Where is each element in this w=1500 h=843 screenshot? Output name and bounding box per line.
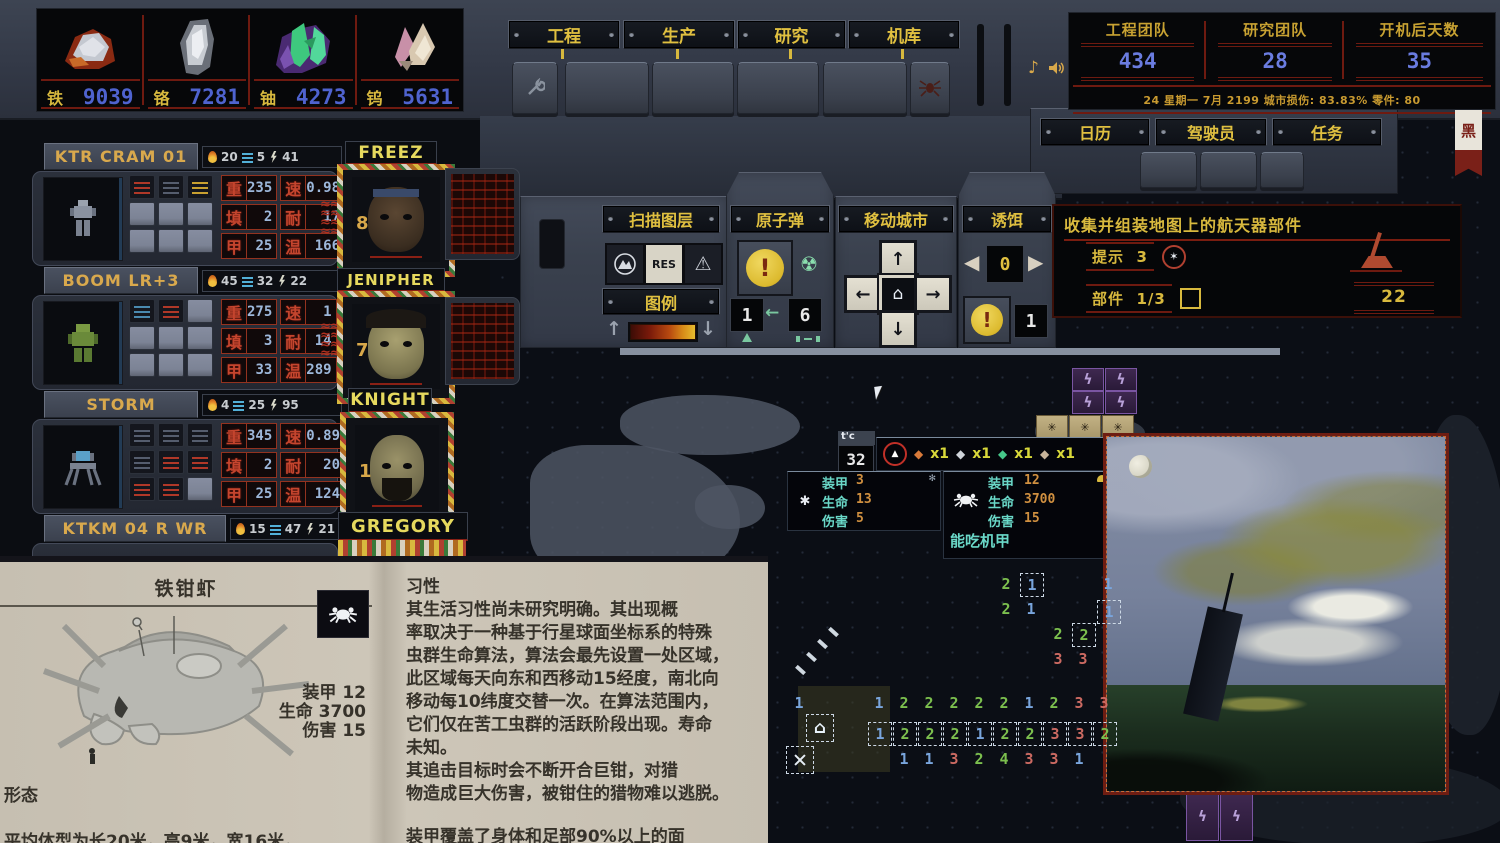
tungsten-drop-icon: ◆	[1040, 447, 1049, 461]
quest-checkbox[interactable]	[1180, 288, 1201, 309]
heat-icon	[208, 399, 217, 411]
radiation-icon: ☢	[800, 252, 818, 276]
map-cell[interactable]: 2	[918, 722, 942, 746]
power-icon	[269, 151, 278, 163]
menu-key-1[interactable]	[1140, 152, 1197, 188]
module-chip[interactable]	[129, 299, 155, 323]
enemy-info-big: 装甲12 生命3700 伤害15 能吃机甲	[943, 471, 1113, 559]
storm-tile[interactable]: ϟ	[1072, 391, 1104, 414]
counter-engineering: 工程团队 434	[1069, 13, 1206, 79]
wrench-icon	[525, 78, 545, 98]
decoy-minus-arrow[interactable]: ◀	[964, 252, 979, 272]
circuit-panel	[445, 297, 520, 385]
module-slot[interactable]	[187, 326, 213, 350]
pilot-card-jenipher[interactable]: JENIPHER 7	[337, 268, 443, 392]
decoy-title: 诱饵	[962, 205, 1052, 233]
quest-hint-label: 提示 3	[1086, 242, 1154, 271]
module-slot[interactable]	[187, 299, 213, 323]
warning-icon: ⚠	[694, 253, 711, 275]
uranium-ore-icon	[268, 15, 338, 77]
enemy-info-small: ✱ 装甲3 生命13 伤害5 ✻	[787, 471, 941, 531]
module-slot[interactable]	[187, 353, 213, 377]
beard	[382, 478, 412, 500]
pilot-card-knight[interactable]: KNIGHT 1	[340, 388, 442, 514]
move-west-button[interactable]: ←	[844, 275, 882, 313]
map-cell[interactable]: 1	[1068, 748, 1090, 770]
module-chip[interactable]	[129, 450, 155, 474]
legend-title: 图例	[602, 288, 720, 315]
cooling-icon	[270, 524, 281, 535]
resource-value: 7281	[189, 85, 240, 109]
menu-key-2[interactable]	[1200, 152, 1257, 188]
nuke-ready-count: 1	[730, 298, 764, 332]
map-cell[interactable]: 1	[1018, 692, 1040, 714]
mech-sprite	[64, 447, 102, 487]
map-cell[interactable]: 3	[1018, 748, 1040, 770]
speaker-icon[interactable]	[1048, 60, 1066, 80]
game-screen: ϟ ϟ ϟ ϟ ✳ ✳ ✳ ϟ ϟ ⌂ t'c 32 ▲ ◆x1 ◆x1 ◆x1…	[0, 0, 1500, 843]
danger-layer-button[interactable]: ⚠	[683, 243, 723, 285]
date-status-line: 24 星期一 7月 2199 城市损伤: 83.83% 零件: 80	[1069, 92, 1495, 108]
pilots-button[interactable]: 驾驶员	[1155, 118, 1267, 146]
map-cell[interactable]: 1	[868, 722, 892, 746]
module-chip[interactable]	[187, 175, 213, 199]
module-chip[interactable]	[129, 423, 155, 447]
map-cell[interactable]: 2	[1018, 722, 1042, 746]
module-slot[interactable]	[158, 229, 184, 253]
calendar-button[interactable]: 日历	[1040, 118, 1150, 146]
wrench-key[interactable]	[512, 62, 558, 114]
bug-key[interactable]	[910, 62, 950, 114]
crab-icon	[328, 604, 358, 624]
mouse-cursor	[874, 385, 889, 400]
counter-research: 研究团队 28	[1206, 13, 1343, 79]
cooling-icon	[242, 152, 253, 163]
resource-panel: 铁 9039 铬 7281 铀 4273	[36, 8, 464, 112]
resource-name: 钨	[367, 85, 383, 109]
city-layer-button[interactable]	[605, 243, 645, 285]
mech-panel-ktr-cram-01[interactable]: KTR CRAM 01 20 5 41 重235 速0.98 填2 耐17 甲2…	[30, 143, 340, 265]
map-cell[interactable]: 1	[968, 722, 992, 746]
volume-slider[interactable]	[977, 24, 984, 106]
nuke-stock-count: 6	[788, 298, 822, 332]
resource-iron: 铁 9039	[37, 9, 144, 111]
iron-drop-icon: ◆	[914, 447, 923, 461]
mountain-layer-icon	[613, 252, 637, 276]
nuke-transfer-arrow: ←	[765, 303, 779, 323]
morphology-text: 平均体型为长20米，高9米，宽16米， 平均重量22吨。 其身体由胸部和腹部组成…	[4, 831, 370, 843]
map-cell[interactable]: 2	[943, 722, 967, 746]
resource-tungsten: 钨 5631	[357, 9, 464, 111]
map-cell[interactable]: 2	[1072, 623, 1096, 647]
storm-tile[interactable]: ϟ	[1186, 793, 1219, 841]
quest-parts-label: 部件 1/3	[1086, 284, 1172, 313]
module-chip[interactable]	[158, 477, 184, 501]
map-cell[interactable]: 2	[995, 573, 1017, 595]
pilot-portrait: 8	[352, 177, 440, 262]
banner-tag[interactable]: 黑	[1455, 110, 1482, 176]
creature-stats: 装甲 12 生命 3700 伤害 15	[240, 684, 366, 741]
mech-sprite	[68, 198, 98, 240]
hotkey-4[interactable]	[823, 62, 907, 114]
resource-chromium: 铬 7281	[144, 9, 251, 111]
decoy-count: 0	[986, 245, 1024, 283]
map-cell[interactable]: 2	[995, 598, 1017, 620]
map-cell[interactable]: 1	[1020, 598, 1042, 620]
map-cell[interactable]: 2	[918, 692, 940, 714]
resource-value: 4273	[296, 85, 347, 109]
pilot-level: 1	[359, 461, 372, 482]
module-slot[interactable]	[129, 202, 155, 226]
sea-art	[1107, 685, 1445, 791]
creature-icon-box	[317, 590, 369, 638]
pilot-card-gregory[interactable]: GREGORY	[338, 512, 466, 560]
map-cell[interactable]: 3	[1043, 748, 1065, 770]
heat-icon	[208, 151, 217, 163]
module-slot[interactable]	[187, 202, 213, 226]
power-icon	[305, 523, 314, 535]
module-chip[interactable]	[187, 423, 213, 447]
map-cell[interactable]: 2	[1093, 722, 1117, 746]
storm-tile[interactable]: ϟ	[1105, 368, 1137, 391]
power-icon	[269, 399, 278, 411]
rocket-icon	[742, 333, 752, 342]
module-slot[interactable]	[187, 229, 213, 253]
module-slot[interactable]	[187, 477, 213, 501]
move-north-button[interactable]: ↑	[879, 240, 917, 278]
scene-viewport[interactable]	[1103, 433, 1449, 795]
tab-research[interactable]: 研究	[737, 20, 846, 49]
silo-icon[interactable]: ▲	[883, 442, 907, 466]
decoy-plus-arrow[interactable]: ▶	[1028, 252, 1043, 272]
creature-tile[interactable]: ✳	[1069, 415, 1101, 439]
circuit-panel	[445, 168, 520, 260]
legend-gradient-bar	[628, 322, 698, 342]
map-cell[interactable]: 1	[1097, 573, 1119, 595]
storm-tile[interactable]: ϟ	[1220, 793, 1253, 841]
scan-layers-title: 扫描图层	[602, 205, 720, 233]
move-east-button[interactable]: →	[914, 275, 952, 313]
module-chip[interactable]	[158, 423, 184, 447]
bug-icon: ✱	[788, 494, 822, 509]
pilot-card-freez[interactable]: FREEZ 8	[337, 141, 443, 265]
crab-icon	[944, 491, 988, 512]
map-hud-bar: ▲ ◆x1 ◆x1 ◆x1 ◆x1	[876, 437, 1122, 471]
legend-down-arrow[interactable]: ↓	[700, 318, 716, 340]
panel-slot	[539, 219, 565, 269]
tab-production[interactable]: 生产	[623, 20, 735, 49]
map-cell[interactable]: 1	[918, 748, 940, 770]
mining-marker[interactable]	[786, 746, 814, 774]
power-icon	[277, 275, 286, 287]
cooling-icon	[233, 400, 244, 411]
resource-name: 铬	[154, 85, 170, 109]
chromium-ore-icon	[174, 15, 220, 77]
counter-panel: 工程团队 434 研究团队 28 开机后天数 35 24 星期一 7月 219	[1068, 12, 1496, 110]
map-cell[interactable]: 3	[1047, 648, 1069, 670]
pilot-portrait: 1	[355, 425, 439, 511]
map-cell[interactable]: 2	[968, 748, 990, 770]
resource-value: 5631	[402, 85, 453, 109]
resource-uranium: 铀 4273	[250, 9, 357, 111]
landmass	[695, 485, 765, 529]
module-chip[interactable]	[129, 175, 155, 199]
map-cell[interactable]: 1	[1097, 600, 1121, 624]
resource-layer-button[interactable]: RES	[644, 243, 684, 285]
nuke-launch-button[interactable]: !	[737, 240, 793, 296]
spider-icon	[919, 79, 941, 97]
tab-engineering[interactable]: 工程	[508, 20, 620, 49]
home-icon: ⌂	[893, 284, 904, 304]
pilot-level: 8	[356, 213, 369, 234]
module-slot[interactable]	[129, 229, 155, 253]
storm-tile[interactable]: ϟ	[1105, 391, 1137, 414]
map-cell[interactable]: 1	[893, 748, 915, 770]
legend-up-arrow[interactable]: ↑	[606, 318, 622, 340]
morphology-title: 形态	[4, 785, 370, 808]
temp-value: 32	[838, 445, 874, 473]
hair	[366, 309, 426, 328]
counter-days: 开机后天数 35	[1344, 13, 1495, 79]
tab-tick	[789, 49, 792, 59]
module-chip[interactable]	[158, 175, 184, 199]
move-city-title: 移动城市	[838, 205, 954, 233]
module-slot[interactable]	[158, 202, 184, 226]
mech-panel-storm[interactable]: STORM 4 25 95 重345 速0.89 填2 耐20 甲25 温124	[30, 391, 340, 513]
module-slot[interactable]	[129, 326, 155, 350]
hotkey-3[interactable]	[737, 62, 819, 114]
headband	[373, 189, 419, 197]
tool-icon	[793, 753, 807, 767]
map-cell[interactable]: 2	[993, 692, 1015, 714]
music-slider[interactable]	[1004, 24, 1011, 106]
module-slot[interactable]	[158, 353, 184, 377]
resource-name: 铀	[260, 85, 276, 109]
city-home-marker[interactable]: ⌂	[806, 714, 834, 742]
map-cell[interactable]: 2	[1043, 692, 1065, 714]
map-cell[interactable]: 3	[943, 748, 965, 770]
music-note-icon[interactable]: ♪	[1028, 58, 1039, 78]
morphology-section: 形态 平均体型为长20米，高9米，宽16米， 平均重量22吨。 其身体由胸部和腹…	[4, 762, 370, 843]
map-cell[interactable]: 2	[968, 692, 990, 714]
tungsten-ore-icon	[385, 17, 439, 73]
heat-icon	[208, 275, 217, 287]
tab-hangar[interactable]: 机库	[848, 20, 960, 49]
module-slot[interactable]	[158, 326, 184, 350]
map-cell[interactable]: 2	[893, 692, 915, 714]
map-top-edge	[620, 348, 1280, 355]
resource-name: 铁	[47, 85, 63, 109]
creature-tile[interactable]: ✳	[1036, 415, 1068, 439]
map-cell[interactable]: 3	[1068, 692, 1090, 714]
map-cell[interactable]: 3	[1072, 648, 1094, 670]
habits-title: 习性	[406, 576, 768, 599]
tab-tick	[561, 49, 564, 59]
map-cell[interactable]: 2	[893, 722, 917, 746]
module-chip[interactable]	[158, 450, 184, 474]
module-slot[interactable]	[129, 353, 155, 377]
pilot-level: 7	[356, 340, 369, 361]
hotkey-1[interactable]	[565, 62, 649, 114]
hotkey-2[interactable]	[652, 62, 734, 114]
moon	[1129, 455, 1152, 478]
iron-ore-icon	[59, 17, 121, 75]
decoy-ready-count: 1	[1014, 304, 1048, 338]
map-cell[interactable]: 2	[1047, 623, 1069, 645]
tab-tick	[901, 49, 904, 59]
heat-icon	[236, 523, 245, 535]
hint-icon[interactable]: ✶	[1162, 245, 1186, 269]
bestiary-right-page: 习性 其生活习性尚未研究明确。其出现概 率取决于一种基于行星球面坐标系的特殊 虫…	[388, 562, 768, 843]
enemy-note: 能吃机甲	[944, 530, 1112, 551]
module-chip[interactable]	[129, 477, 155, 501]
map-cell[interactable]: 4	[993, 748, 1015, 770]
menu-key-3[interactable]	[1260, 152, 1304, 188]
map-cell[interactable]: 3	[1043, 722, 1067, 746]
habits-text-2: 装甲覆盖了身体和足部90%以上的面 积，极大提高了生存能力，能无视极高的	[406, 826, 766, 843]
tab-tick	[676, 49, 679, 59]
temp-chip: t'c	[838, 431, 875, 445]
map-cell[interactable]: 3	[1068, 722, 1092, 746]
module-chip[interactable]	[158, 299, 184, 323]
cooling-icon	[242, 276, 253, 287]
habits-text: 其生活习性尚未研究明确。其出现概 率取决于一种基于行星球面坐标系的特殊 虫群生命…	[406, 599, 766, 806]
module-chip[interactable]	[187, 450, 213, 474]
map-cell[interactable]: 2	[943, 692, 965, 714]
quest-panel: 收集并组装地图上的航天器部件 提示 3 ✶ 部件 1/3 22	[1052, 204, 1462, 318]
chromium-drop-icon: ◆	[956, 447, 965, 461]
map-cell[interactable]: 2	[993, 722, 1017, 746]
mech-sprite	[68, 322, 98, 364]
map-cell[interactable]: 1	[1020, 573, 1044, 597]
resource-value: 9039	[83, 85, 134, 109]
map-cell[interactable]: 1	[868, 692, 890, 714]
mech-panel-boom-lr3[interactable]: BOOM LR+3 45 32 22 重275 速1 填3 耐14 甲33 温2…	[30, 267, 340, 389]
move-south-button[interactable]: ↓	[879, 310, 917, 348]
bestiary-left-page: 铁钳虾	[0, 562, 372, 843]
uranium-drop-icon: ◆	[998, 447, 1007, 461]
city-center-button[interactable]: ⌂	[879, 275, 917, 313]
decoy-launch-button[interactable]: !	[963, 296, 1011, 344]
base-icon	[796, 336, 820, 342]
map-cell[interactable]: 1	[788, 692, 810, 714]
spacecraft-part-icon	[1344, 236, 1404, 276]
map-cell[interactable]: 3	[1093, 692, 1115, 714]
snow-mini-icon: ✻	[928, 474, 936, 484]
nuke-title: 原子弹	[730, 205, 830, 233]
missions-button[interactable]: 任务	[1272, 118, 1382, 146]
storm-tile[interactable]: ϟ	[1072, 368, 1104, 391]
pilot-portrait: 7	[352, 304, 440, 389]
bestiary-book: 铁钳虾	[0, 556, 768, 843]
quest-days-counter: 22	[1354, 287, 1434, 307]
